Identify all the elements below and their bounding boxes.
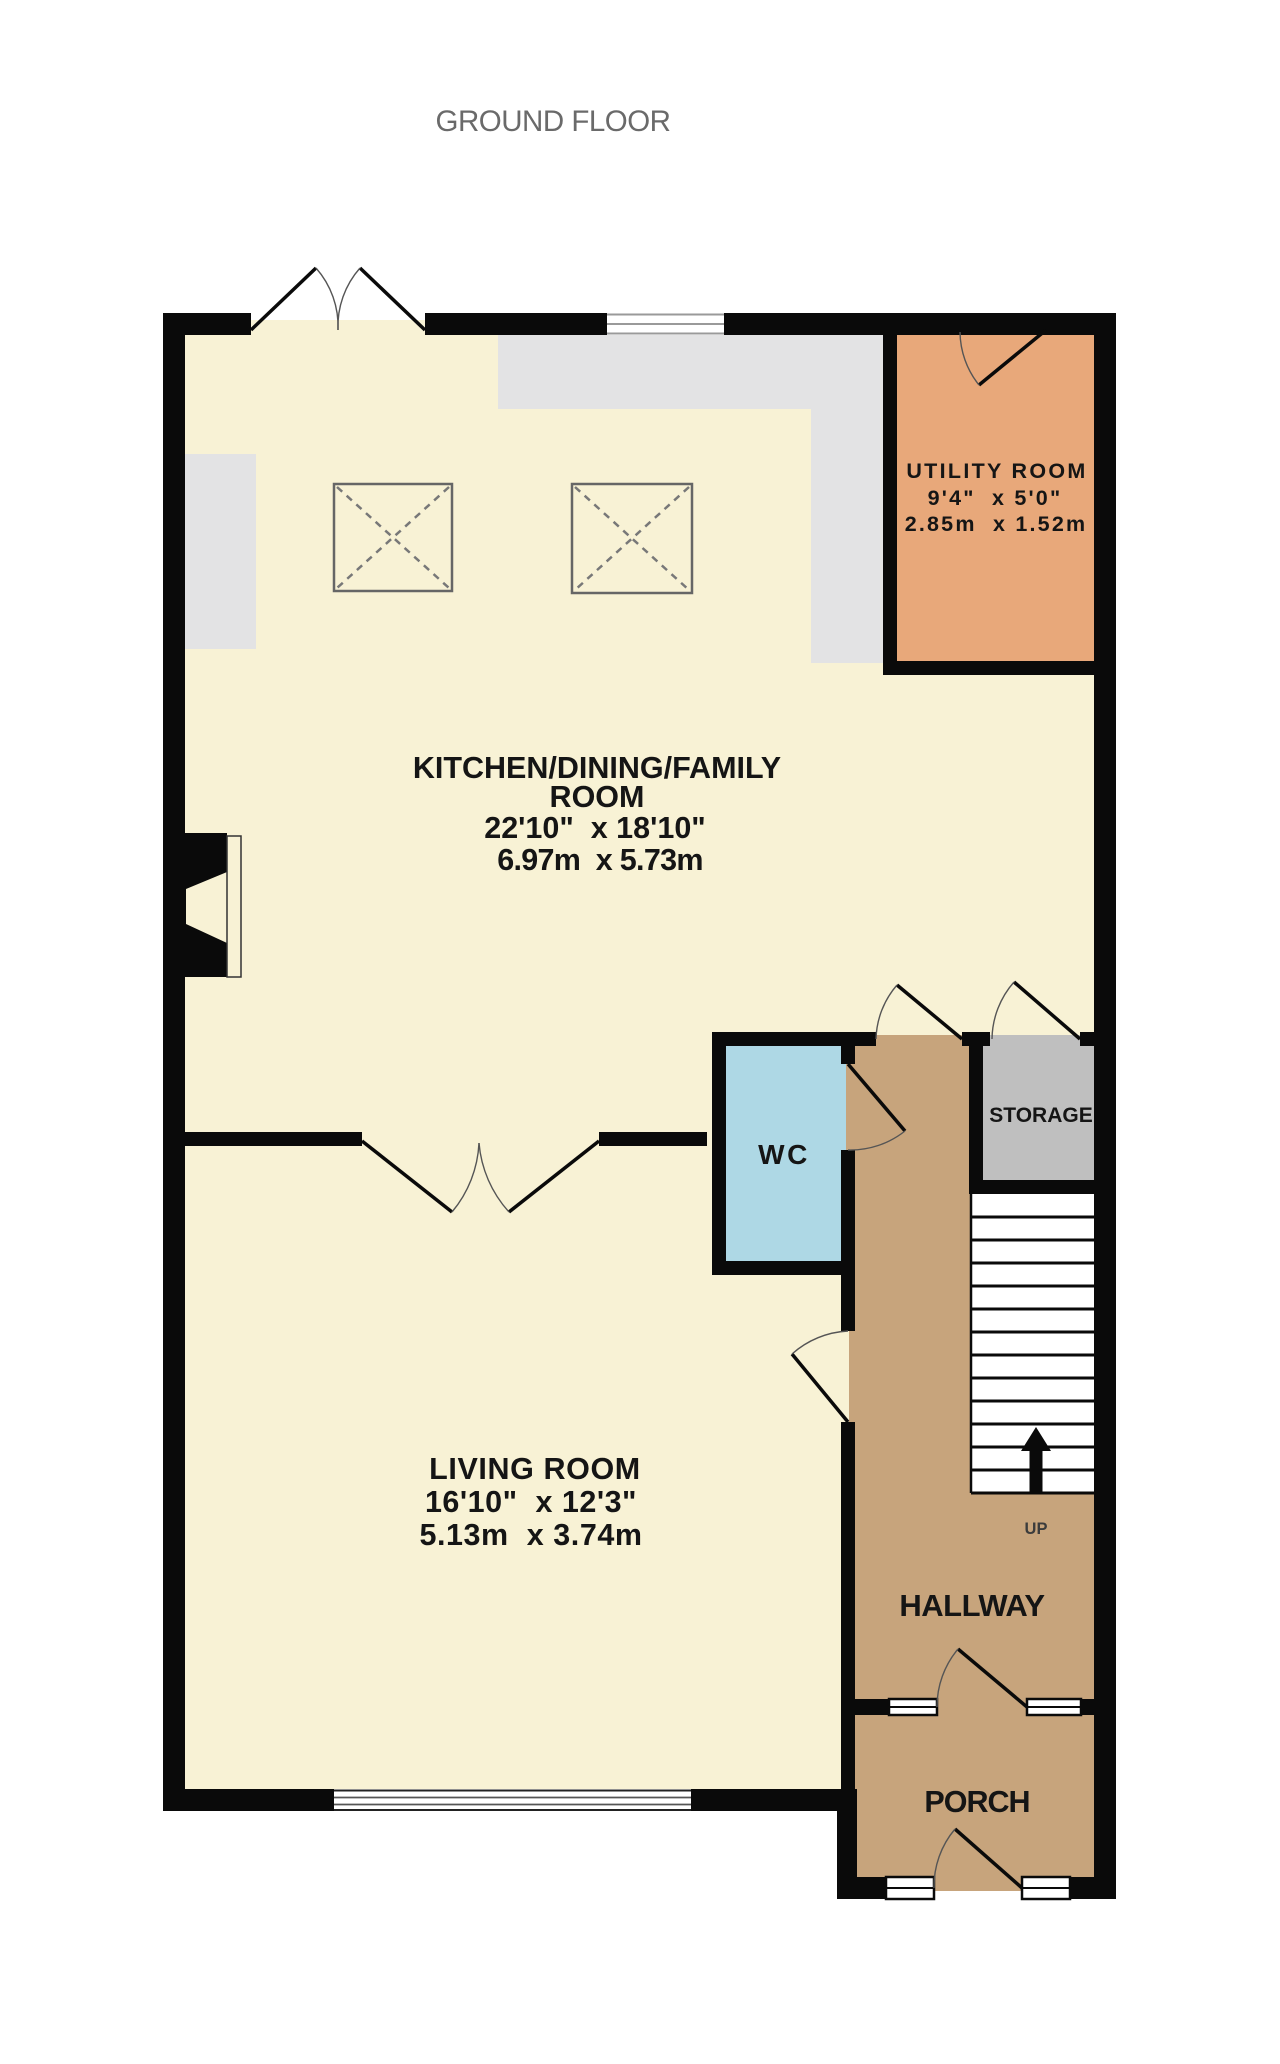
svg-text:UTILITY ROOM: UTILITY ROOM	[906, 459, 1087, 483]
svg-text:2.85m x 1.52m: 2.85m x 1.52m	[905, 512, 1088, 536]
svg-text:ROOM: ROOM	[550, 780, 645, 814]
svg-text:22'10" x 18'10": 22'10" x 18'10"	[484, 811, 706, 845]
svg-text:WC: WC	[758, 1139, 810, 1170]
svg-text:6.97m x 5.73m: 6.97m x 5.73m	[497, 843, 703, 877]
svg-text:GROUND FLOOR: GROUND FLOOR	[436, 105, 671, 138]
svg-text:9'4" x 5'0": 9'4" x 5'0"	[928, 486, 1063, 510]
svg-text:UP: UP	[1025, 1520, 1048, 1538]
svg-text:16'10" x 12'3": 16'10" x 12'3"	[425, 1485, 637, 1519]
svg-text:HALLWAY: HALLWAY	[899, 1588, 1045, 1623]
svg-text:5.13m x 3.74m: 5.13m x 3.74m	[419, 1518, 642, 1552]
svg-text:LIVING ROOM: LIVING ROOM	[429, 1452, 641, 1486]
svg-text:STORAGE: STORAGE	[989, 1104, 1092, 1127]
svg-text:PORCH: PORCH	[924, 1785, 1029, 1819]
